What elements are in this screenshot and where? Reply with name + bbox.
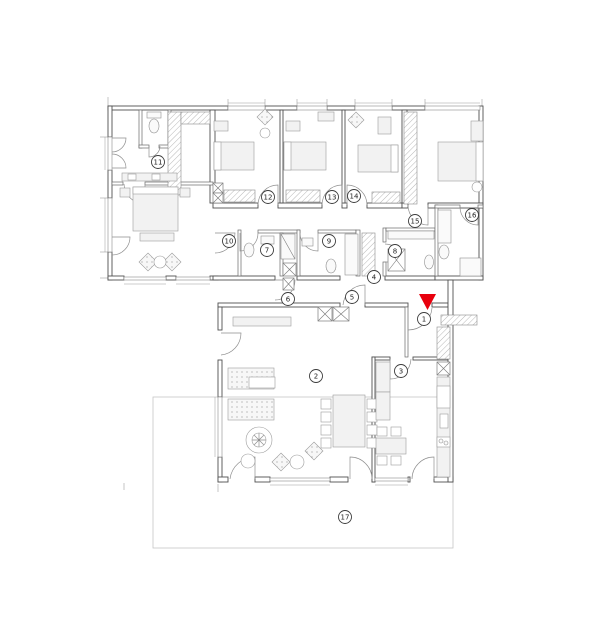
- armchair: [305, 442, 323, 460]
- room-label-text-17: 17: [341, 514, 350, 522]
- toilet: [439, 245, 449, 259]
- corridor4-wardrobe: [362, 233, 375, 276]
- dining-table: [333, 395, 365, 447]
- room-label-text-7: 7: [265, 247, 269, 255]
- entry-wardrobe: [437, 327, 450, 359]
- floor-plan-canvas: 1234567891011121314151617: [0, 0, 602, 640]
- desk: [471, 121, 483, 141]
- room-label-text-10: 10: [225, 238, 234, 246]
- floor-plan-page: 1234567891011121314151617: [0, 0, 602, 640]
- room-label-text-1: 1: [422, 316, 426, 324]
- toilet: [149, 119, 159, 133]
- bedroom13-wardrobe: [286, 190, 320, 202]
- room-label-text-2: 2: [314, 373, 318, 381]
- bedroom12-wardrobe: [224, 190, 255, 202]
- armchair: [348, 112, 364, 128]
- chair: [367, 399, 377, 409]
- stool: [472, 182, 482, 192]
- entrance-arrow: [419, 294, 436, 310]
- room-label-text-16: 16: [468, 212, 477, 220]
- sink: [302, 238, 313, 246]
- bedroom15-wardrobe: [404, 112, 417, 204]
- side-table: [154, 256, 166, 268]
- room-label-text-13: 13: [328, 194, 337, 202]
- counter: [388, 231, 434, 239]
- side-table: [241, 454, 255, 468]
- chair: [367, 438, 377, 448]
- fridge: [437, 386, 450, 408]
- hall-wardrobe: [168, 112, 181, 195]
- sofa: [228, 399, 274, 420]
- chair: [377, 427, 387, 436]
- room-label-text-8: 8: [393, 248, 397, 256]
- room-label-text-12: 12: [264, 194, 273, 202]
- chair: [321, 438, 331, 448]
- cabinet: [318, 112, 334, 121]
- bed-bench: [140, 233, 174, 241]
- chair: [391, 456, 401, 465]
- kitchen-table: [376, 438, 406, 454]
- shower: [460, 258, 481, 276]
- nightstand: [180, 188, 190, 197]
- room-labels-layer: 1234567891011121314151617: [152, 156, 479, 524]
- desk: [286, 121, 300, 131]
- room-label-text-5: 5: [350, 294, 354, 302]
- kitchen-tall-unit: [376, 392, 390, 420]
- terrace-outline: [153, 397, 453, 548]
- bedroom14-wardrobe: [372, 192, 400, 203]
- room-label-text-6: 6: [286, 296, 291, 304]
- vanity: [438, 210, 451, 243]
- armchair: [272, 453, 290, 471]
- chair: [377, 456, 387, 465]
- hall-shelf: [181, 112, 210, 124]
- cistern: [147, 112, 161, 118]
- room-label-text-4: 4: [372, 274, 377, 282]
- chair: [367, 412, 377, 422]
- bathtub: [345, 234, 358, 275]
- room-label-text-14: 14: [350, 193, 359, 201]
- nightstand: [120, 188, 130, 197]
- chair: [321, 412, 331, 422]
- side-table: [290, 455, 304, 469]
- chair: [321, 425, 331, 435]
- chair: [391, 427, 401, 436]
- kitchen-sink: [440, 414, 448, 428]
- chair: [367, 425, 377, 435]
- toilet: [244, 243, 254, 257]
- cabinet: [378, 117, 391, 134]
- kitchen-tall-unit: [376, 362, 390, 392]
- sink: [261, 236, 274, 244]
- armchair: [257, 109, 273, 125]
- toilet: [425, 255, 434, 269]
- room-label-text-15: 15: [411, 218, 420, 226]
- tv-cabinet: [233, 317, 291, 326]
- room-label-text-3: 3: [399, 368, 403, 376]
- toilet: [326, 259, 336, 273]
- coffee-table: [249, 377, 275, 388]
- desk: [214, 121, 228, 131]
- entry-shelf: [441, 315, 477, 325]
- room-label-text-9: 9: [327, 238, 331, 246]
- chair: [321, 399, 331, 409]
- room-label-text-11: 11: [154, 159, 163, 167]
